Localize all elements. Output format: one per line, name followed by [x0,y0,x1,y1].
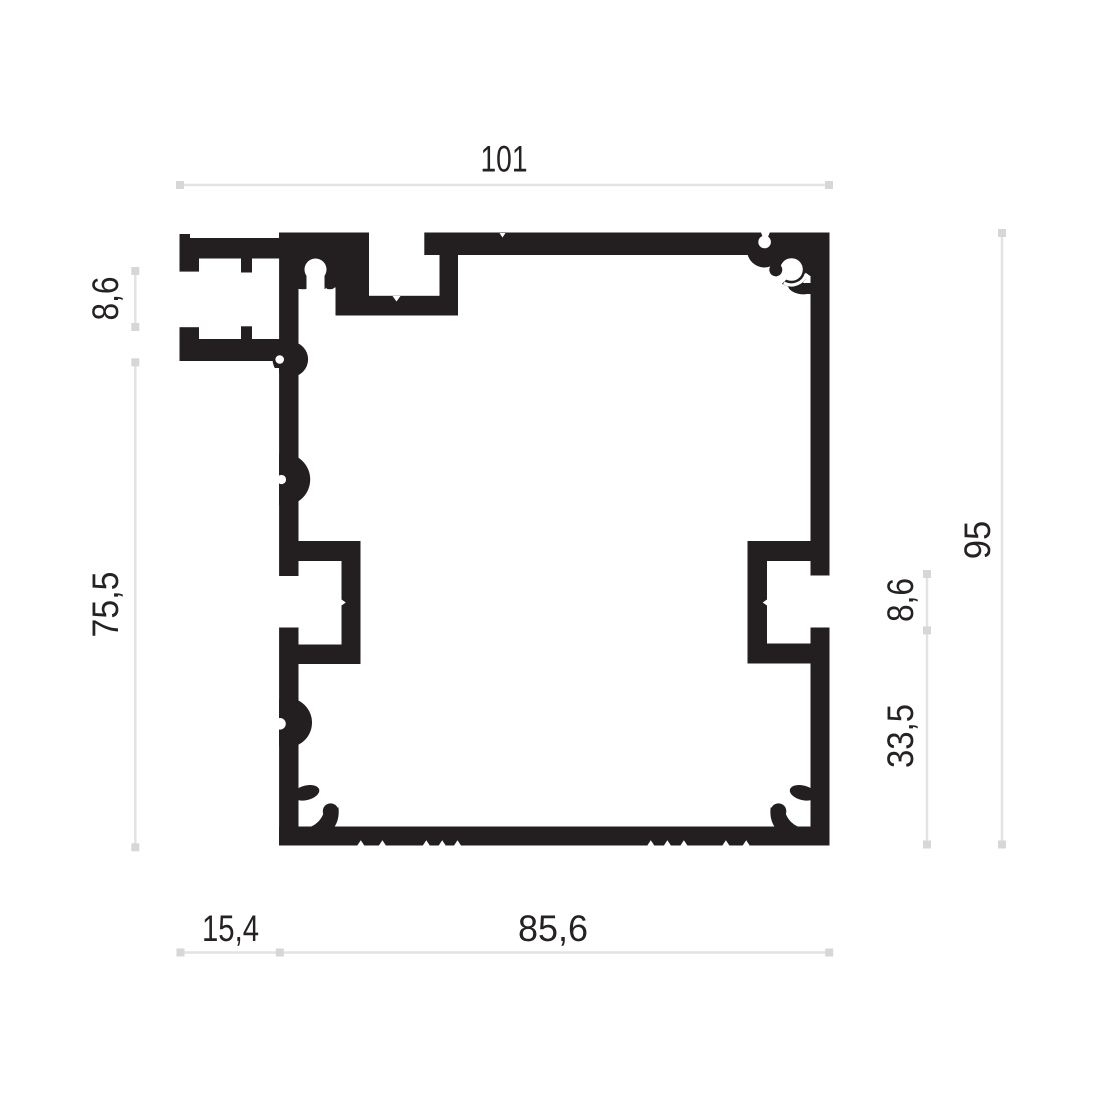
svg-text:85,6: 85,6 [518,908,588,949]
svg-text:95: 95 [957,521,998,560]
svg-text:33,5: 33,5 [880,704,921,768]
svg-text:75,5: 75,5 [85,572,126,638]
svg-text:15,4: 15,4 [202,908,259,949]
svg-text:101: 101 [481,139,528,180]
svg-text:8,6: 8,6 [880,578,921,622]
svg-text:8,6: 8,6 [85,277,126,321]
